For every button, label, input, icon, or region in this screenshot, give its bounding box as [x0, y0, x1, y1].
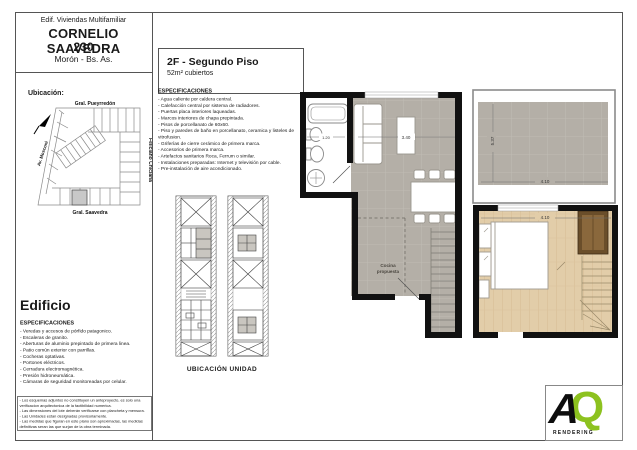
city-block-outline — [38, 108, 140, 205]
note-item: - Los esquemas adjuntos no constituyen u… — [20, 398, 148, 409]
building-specs: ESPECIFICACIONES - Veredas y accesos de … — [20, 320, 151, 385]
street-name-bottom: Gral. Saavedra — [72, 210, 107, 216]
key-plan-strip-1 — [176, 196, 216, 356]
sofa — [354, 104, 382, 164]
location-label: Ubicación: — [28, 90, 64, 97]
subject-lot-highlight — [72, 190, 87, 205]
bath-dim: 1.20 — [322, 135, 331, 140]
key-plan-strips — [174, 195, 270, 357]
building-type-label: Edif. Viviendas Multifamiliar — [15, 17, 152, 24]
island-dim: 3.40 — [402, 135, 411, 140]
nightstand — [479, 224, 491, 248]
unit-area: 52m² cubiertos — [167, 70, 303, 77]
key-plan-strip-2 — [228, 196, 268, 356]
title-block-divider — [15, 72, 152, 73]
floor-plan: 5.37 4.10 — [295, 82, 625, 344]
unit-title: 2F - Segundo Piso — [167, 56, 303, 68]
left-column-divider — [152, 12, 153, 440]
dining-table — [411, 182, 457, 212]
svg-text:propuesta: propuesta — [377, 269, 400, 274]
building-specs-heading: ESPECIFICACIONES — [20, 320, 151, 326]
city-label: Morón - Bs. As. — [15, 54, 152, 64]
bed — [479, 222, 548, 298]
stair-floor — [430, 296, 456, 334]
unit-specs-heading: ESPECIFICACIONES — [158, 88, 301, 94]
wardrobe — [578, 211, 608, 254]
bidet — [308, 170, 325, 187]
north-arrow-icon — [34, 114, 51, 134]
svg-text:Cocina: Cocina — [380, 263, 396, 268]
note-item: - Las medidas que figuran en este plano … — [20, 419, 148, 430]
unit-specs: ESPECIFICACIONES - Agua caliente por cal… — [158, 88, 301, 172]
logo-box: Q A RENDERING — [545, 385, 623, 441]
note-item: - Las dimensiones del lote deberán verif… — [20, 409, 148, 414]
location-map: Gral. Pueyrredón Gral. Saavedra Felician… — [28, 98, 152, 218]
toilet — [306, 146, 324, 162]
dining-set — [411, 170, 457, 223]
disclaimer-box: - Los esquemas adjuntos no constituyen u… — [17, 396, 152, 431]
bedroom-window — [498, 205, 558, 211]
bedroom-width-dim: 4.10 — [541, 215, 550, 220]
terrace-floor — [478, 102, 608, 185]
terrace-width-dim: 4.10 — [541, 179, 550, 184]
spec-item: - Cámaras de seguridad monitoreadas por … — [20, 379, 151, 385]
disclaimer-notes: - Los esquemas adjuntos no constituyen u… — [18, 397, 149, 431]
terrace-height-dim: 5.37 — [490, 136, 495, 145]
living-window — [365, 92, 438, 98]
building-title: Edificio — [20, 297, 71, 313]
logo-caption: RENDERING — [553, 430, 594, 436]
spec-item: - Piso y paredes de baño en porcellanato… — [158, 128, 301, 141]
dresser — [479, 280, 489, 298]
nightstand — [479, 252, 491, 276]
street-name-top: Gral. Pueyrredón — [75, 101, 116, 107]
street-name-right: Feliciano Chiclana — [147, 138, 152, 182]
plan-sheet: Edif. Viviendas Multifamiliar CORNELIO S… — [0, 0, 637, 450]
key-plan-label: UBICACIÓN UNIDAD — [166, 366, 278, 373]
spec-item: - Pre-instalación de aire acondicionado. — [158, 166, 301, 172]
street-number: 230 — [15, 40, 152, 54]
